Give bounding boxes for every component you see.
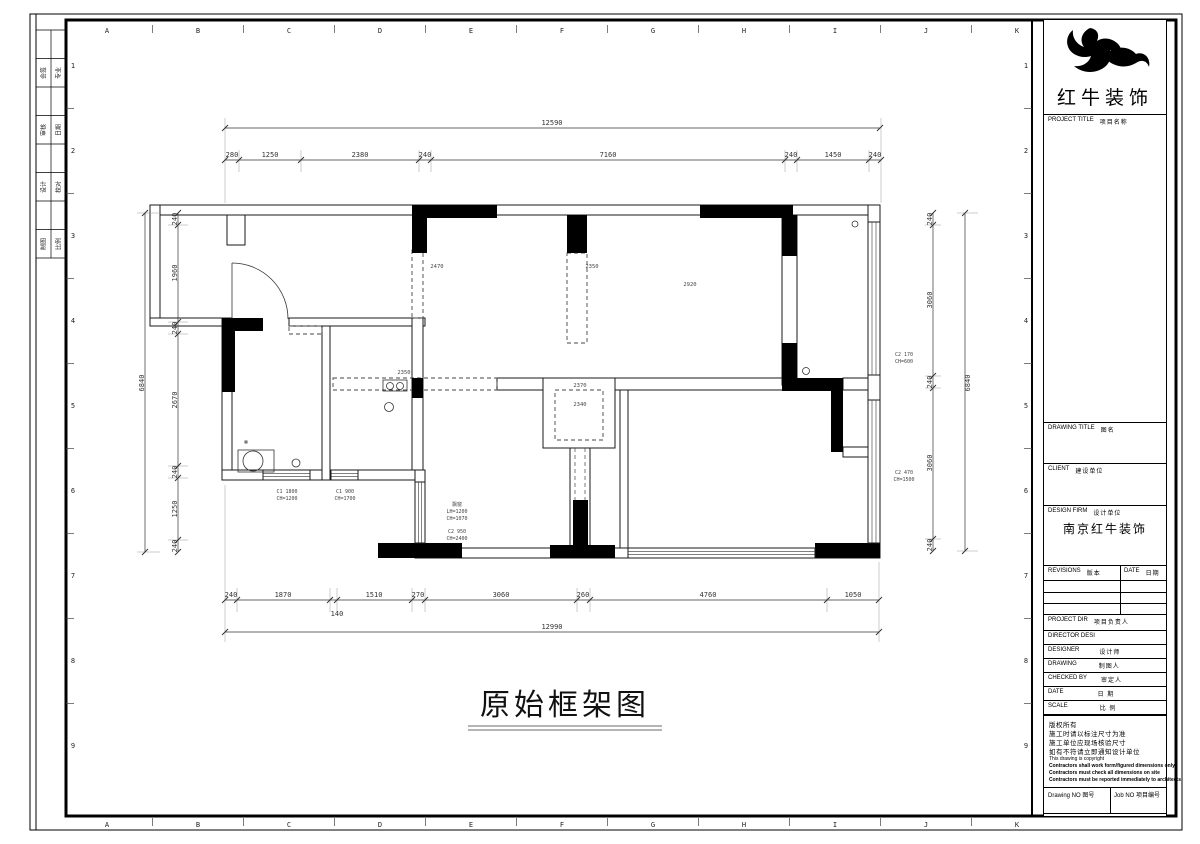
dim-bottom: 240	[225, 591, 238, 599]
grid-number: 2	[71, 147, 75, 155]
dim-bottom: 1510	[366, 591, 383, 599]
grid-letter: I	[833, 27, 837, 35]
dim-left-total: 6840	[138, 375, 146, 392]
grid-letter: H	[742, 27, 746, 35]
date-label-en: DATE	[1048, 689, 1064, 698]
design-firm-label-cn: 设计单位	[1093, 508, 1121, 517]
floor-plan: 2470 2350 2920 2350 2370 2340 C1 1800 CH…	[150, 205, 915, 558]
project-dir-label-en: PROJECT DIR	[1048, 617, 1088, 626]
window-label: CH=1070	[446, 516, 467, 522]
drawing-by-label-en: DRAWING	[1048, 661, 1077, 670]
drawing-by-cell: DRAWING制图人	[1044, 659, 1166, 673]
beam-label: 2920	[683, 282, 696, 288]
grid-numbers-right: 1 2 3 4 5 6 7 8 9	[1024, 62, 1028, 750]
sig-cell: 审核	[40, 124, 48, 136]
grid-number: 9	[1024, 742, 1028, 750]
dim-left: 1250	[171, 501, 179, 518]
client-cell: CLIENT建设单位	[1044, 464, 1166, 506]
drawing-by-label-cn: 制图人	[1099, 661, 1120, 670]
note-line: This drawing is copyright	[1049, 756, 1104, 762]
drawing-title-label-en: DRAWING TITLE	[1048, 425, 1095, 434]
dim-bottom: 140	[331, 610, 344, 618]
window-label: C2 470	[895, 470, 913, 476]
dim-left: 2670	[171, 392, 179, 409]
grid-number: 6	[1024, 487, 1028, 495]
dim-right: 240	[926, 376, 934, 389]
scale-label-en: SCALE	[1048, 703, 1068, 712]
bull-logo	[1056, 24, 1156, 86]
dim-left: 240	[171, 540, 179, 553]
dim-top: 1450	[825, 151, 842, 159]
title-block: 红牛装饰 PROJECT TITLE项目名称 DRAWING TITLE图名 C…	[1043, 20, 1167, 816]
checked-by-cell: CHECKED BY审定人	[1044, 673, 1166, 687]
dim-top: 1250	[262, 151, 279, 159]
grid-number: 7	[1024, 572, 1028, 580]
project-title-label-en: PROJECT TITLE	[1048, 117, 1094, 126]
director-cell: DIRECTOR DESI	[1044, 631, 1166, 645]
grid-letter: E	[469, 821, 473, 829]
grid-letter: F	[560, 27, 564, 35]
sig-cell: 日期	[55, 124, 63, 136]
design-firm-value: 南京红牛装饰	[1044, 520, 1166, 537]
grid-number: 3	[1024, 232, 1028, 240]
dim-right: 3060	[926, 455, 934, 472]
window-label: C2 950	[448, 529, 466, 535]
window-label: C1 1800	[276, 489, 297, 495]
scale-label-cn: 比 例	[1100, 703, 1117, 712]
grid-letter: K	[1015, 821, 1020, 829]
dim-bottom: 1870	[275, 591, 292, 599]
grid-number: 6	[71, 487, 75, 495]
grid-letter: H	[742, 821, 746, 829]
dim-bottom: 270	[412, 591, 425, 599]
sig-cell: 设计	[40, 181, 48, 193]
grid-number: 7	[71, 572, 75, 580]
dim-left: 240	[171, 322, 179, 335]
kitchen-fixtures	[383, 380, 407, 412]
window-label: CH=1700	[334, 496, 355, 502]
date-cell: DATE日 期	[1044, 687, 1166, 701]
grid-letter: E	[469, 27, 473, 35]
dim-top: 240	[419, 151, 432, 159]
pivot-mark	[852, 221, 858, 227]
window-label: CH=2400	[446, 536, 467, 542]
scale-cell: SCALE比 例	[1044, 701, 1166, 716]
dim-right: 3060	[926, 292, 934, 309]
designer-label-cn: 设计师	[1099, 647, 1120, 656]
note-line: Contractors must check all dimensions on…	[1049, 770, 1160, 776]
dim-bottom: 4760	[700, 591, 717, 599]
dim-right-total: 6840	[964, 375, 972, 392]
logo-row: 红牛装饰	[1044, 20, 1166, 115]
drawing-no-label: Drawing NO 图号	[1048, 790, 1094, 799]
designer-label-en: DESIGNER	[1048, 647, 1079, 656]
window-label: CH=1500	[893, 477, 914, 483]
grid-number: 2	[1024, 147, 1028, 155]
dim-bottom: 3060	[493, 591, 510, 599]
dim-top: 7160	[600, 151, 617, 159]
grid-letter: C	[287, 821, 291, 829]
grid-number: 5	[1024, 402, 1028, 410]
dim-bottom: 260	[577, 591, 590, 599]
grid-letter: C	[287, 27, 291, 35]
revisions-cell: REVISIONS版本 DATE日期	[1044, 566, 1166, 615]
grid-number: 1	[1024, 62, 1028, 70]
design-firm-label-en: DESIGN FIRM	[1048, 508, 1087, 517]
grid-letters-bottom: A B C D E F G H I J K	[105, 821, 1020, 829]
date-label-cn: 日 期	[1098, 689, 1115, 698]
job-no-label: Job NO 项目编号	[1114, 790, 1160, 799]
drawing-title-label-cn: 图名	[1101, 425, 1115, 434]
notes-cell: 版权所有 施工时请以标注尺寸为准 施工单位应现场核验尺寸 如有不符请立即通知设计…	[1044, 716, 1166, 788]
beam-label: 2370	[573, 383, 586, 389]
grid-letter: G	[651, 27, 655, 35]
grid-numbers-left: 1 2 3 4 5 6 7 8 9	[71, 62, 75, 750]
grid-letter: B	[196, 27, 200, 35]
sig-cell: 校对	[55, 181, 63, 193]
cad-sheet: { "sheet": { "grid_letters": ["A","B","C…	[0, 0, 1200, 844]
drawing-title-cell: DRAWING TITLE图名	[1044, 423, 1166, 464]
design-firm-cell: DESIGN FIRM设计单位 南京红牛装饰	[1044, 506, 1166, 566]
window-label: LH=1200	[446, 509, 467, 515]
sig-cell: 比例	[55, 238, 63, 250]
grid-number: 5	[71, 402, 75, 410]
project-title-label-cn: 项目名称	[1100, 117, 1128, 126]
beam-label: 2470	[430, 264, 443, 270]
sig-cell: 专业	[55, 67, 63, 79]
pivot-mark	[803, 368, 810, 375]
drawing-canvas: 会签 专业 审核 日期 设计 校对 制图 比例 A B C D E F G H …	[0, 0, 1200, 844]
window-label: CH=1200	[276, 496, 297, 502]
note-line: 如有不符请立即通知设计单位	[1049, 746, 1140, 756]
dim-bottom: 1050	[845, 591, 862, 599]
grid-letter: K	[1015, 27, 1020, 35]
dim-left: 1960	[171, 265, 179, 282]
grid-number: 8	[71, 657, 75, 665]
bathroom-fixtures	[238, 441, 300, 472]
project-dir-label-cn: 项目负责人	[1094, 617, 1129, 626]
grid-letter: G	[651, 821, 655, 829]
director-label-en: DIRECTOR DESI	[1048, 633, 1095, 639]
grid-letter: D	[378, 821, 382, 829]
drawing-title-text: 原始框架图	[480, 688, 650, 723]
window-label: 飘窗	[452, 501, 462, 508]
beam-label: 2350	[397, 370, 410, 376]
dim-top: 2380	[352, 151, 369, 159]
dim-top: 280	[226, 151, 239, 159]
grid-number: 4	[1024, 317, 1028, 325]
project-dir-cell: PROJECT DIR项目负责人	[1044, 615, 1166, 631]
extension-lines	[225, 118, 881, 203]
grid-letters-top: A B C D E F G H I J K	[105, 27, 1020, 35]
revisions-label-cn: 版本	[1087, 568, 1101, 577]
checked-by-label-en: CHECKED BY	[1048, 675, 1087, 684]
grid-number: 1	[71, 62, 75, 70]
dim-left: 240	[171, 213, 179, 226]
grid-letter: B	[196, 821, 200, 829]
grid-letter: D	[378, 27, 382, 35]
project-title-cell: PROJECT TITLE项目名称	[1044, 115, 1166, 423]
beam-label: 2340	[573, 402, 586, 408]
signature-strip	[36, 30, 66, 258]
company-name: 红牛装饰	[1044, 83, 1166, 110]
grid-number: 9	[71, 742, 75, 750]
sig-cell: 会签	[40, 67, 48, 79]
dim-right: 240	[926, 539, 934, 552]
beam-label: 2350	[585, 264, 598, 270]
grid-letter: A	[105, 821, 110, 829]
window-label: C1 900	[336, 489, 354, 495]
revisions-label-en: REVISIONS	[1048, 568, 1081, 577]
drawing-no-cell: Drawing NO 图号 Job NO 项目编号	[1044, 788, 1166, 814]
grid-letter: F	[560, 821, 564, 829]
note-line: Contractors must be reported immediately…	[1049, 777, 1181, 783]
dim-top: 240	[869, 151, 882, 159]
drawing-title: 原始框架图	[468, 688, 662, 730]
dim-right: 240	[926, 213, 934, 226]
dim-bottom-total: 12990	[541, 623, 562, 631]
dim-top-total: 12590	[541, 119, 562, 127]
checked-by-label-cn: 审定人	[1101, 675, 1122, 684]
grid-letter: A	[105, 27, 110, 35]
client-label-en: CLIENT	[1048, 466, 1069, 475]
grid-number: 8	[1024, 657, 1028, 665]
sig-cell: 制图	[40, 238, 48, 250]
client-label-cn: 建设单位	[1075, 466, 1103, 475]
dim-top: 240	[785, 151, 798, 159]
door-swing	[232, 263, 288, 319]
note-line: Contractors shall work form/figured dime…	[1049, 763, 1175, 769]
grid-number: 3	[71, 232, 75, 240]
grid-letter: J	[924, 27, 928, 35]
grid-letter: J	[924, 821, 928, 829]
window-label: CH=600	[895, 359, 913, 365]
window-label: C2 170	[895, 352, 913, 358]
dim-left: 240	[171, 466, 179, 479]
grid-letter: I	[833, 821, 837, 829]
extension-lines	[239, 150, 869, 172]
rev-date-label-en: DATE	[1124, 568, 1140, 577]
rev-date-label-cn: 日期	[1146, 568, 1160, 577]
grid-number: 4	[71, 317, 75, 325]
designer-cell: DESIGNER设计师	[1044, 645, 1166, 659]
